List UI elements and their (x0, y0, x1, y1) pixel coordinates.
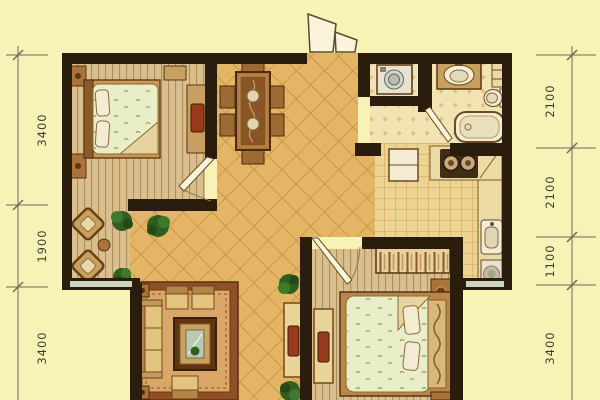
cabinet-bedroom1 (164, 66, 186, 80)
dim-label-right-1: 2100 (543, 84, 557, 117)
dining-table (236, 72, 270, 150)
floor-plan-canvas: 3400 1900 3400 2100 2100 1100 3400 (0, 0, 600, 400)
armchair (192, 286, 214, 309)
bed-double (340, 292, 454, 396)
tv (191, 104, 204, 132)
armchair (166, 286, 188, 309)
wall (128, 199, 217, 211)
armchair (172, 376, 198, 399)
pillow (95, 121, 110, 148)
kitchen-window (466, 281, 504, 287)
dining-chair (269, 114, 284, 136)
dim-label-left-bottom: 3400 (35, 331, 49, 364)
wall (205, 53, 217, 159)
dim-label-left-top: 3400 (35, 113, 49, 146)
dim-label-right-3: 1100 (543, 244, 557, 277)
laundry-machine (377, 65, 412, 94)
balcony-side-table (98, 239, 110, 251)
tv (318, 332, 329, 362)
wall (362, 237, 463, 249)
kitchen-sink (481, 220, 502, 254)
wall (418, 62, 432, 112)
wall (502, 53, 512, 290)
nightstand (431, 392, 451, 400)
pillow (95, 90, 110, 117)
wall (300, 237, 312, 400)
plate (247, 90, 259, 102)
headboard (84, 80, 93, 158)
wardrobe (376, 248, 450, 273)
living-room-furniture (134, 282, 238, 400)
dim-label-right-2: 2100 (543, 175, 557, 208)
table-plant (191, 347, 200, 356)
tv-cabinet-bedroom2 (314, 309, 333, 383)
floor-plan-page: 3400 1900 3400 2100 2100 1100 3400 (0, 0, 600, 400)
pillow (403, 341, 421, 370)
fridge (389, 149, 418, 181)
coffee-table (174, 318, 216, 370)
nightstand-decor (75, 73, 81, 79)
pillow (403, 305, 421, 334)
wall (355, 143, 381, 156)
balcony-window (70, 281, 132, 287)
wall (62, 53, 307, 64)
dining-chair (220, 114, 235, 136)
wall (130, 283, 142, 400)
dim-label-left-middle: 1900 (35, 229, 49, 262)
wall (358, 53, 370, 97)
plate (247, 118, 259, 130)
bathroom-vanity-sink (437, 61, 481, 89)
dining-chair (220, 86, 235, 108)
dining-chair (269, 86, 284, 108)
entry-door (308, 14, 357, 52)
bathtub (455, 112, 504, 142)
nightstand-decor (75, 163, 81, 169)
bed-double (84, 80, 160, 158)
tv-dresser-bedroom1 (187, 85, 207, 153)
wall (450, 143, 512, 156)
wall (370, 96, 420, 106)
wall (358, 53, 512, 64)
wall (450, 237, 463, 400)
floor-entry-threshold (307, 53, 358, 64)
dim-label-right-4: 3400 (543, 331, 557, 364)
headboard-panel (428, 300, 446, 388)
wall (62, 53, 72, 290)
tv (288, 326, 299, 356)
